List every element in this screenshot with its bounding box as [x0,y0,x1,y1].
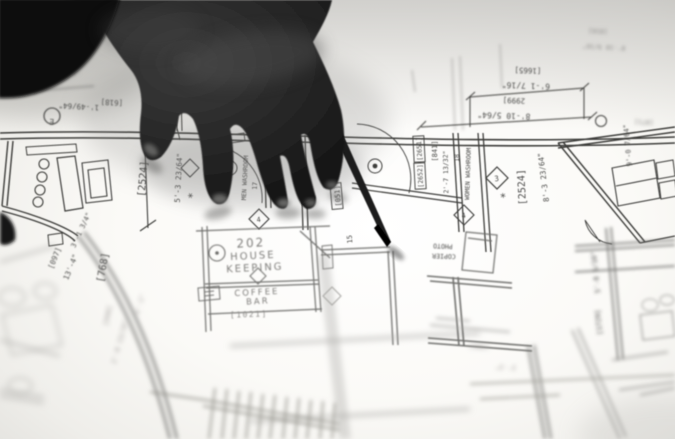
dim-33: 3'-3" [495,362,516,371]
room-202-number: 202 [236,235,266,250]
tag-841: [841] [431,140,439,161]
dim-2713: 2'-7 13/32" [442,150,451,193]
photo-hand-over-blueprint: [816] 8'-10 61/64" -1' 49/64" [512] [816… [0,0,675,439]
coffee-bar-line2: BAR [246,296,270,307]
target-dot-right [373,164,378,169]
tag-1021: [1021] [230,309,268,319]
dim-1665-len: 6'-1 7/16" [502,80,550,91]
wrist-highlight [100,8,200,52]
tag-2652-text: [2652] [416,164,425,188]
dim-816-tr-tag: [816] [588,26,608,35]
num-15: 15 [346,235,355,244]
dim-2999-tag: 2999] [502,96,525,106]
dim-2524-right: [2524] [516,169,529,206]
copier-label1: PHOTO [433,242,453,251]
tag-986: [986] [468,341,489,350]
dim-1665-tag: [1665] [514,66,541,76]
circle-e-letter: E [49,117,54,126]
door-pivot-dot [215,251,219,255]
dim-2999-len: 8'-10 5/64" [477,110,530,121]
copier-label2: COPIER [432,252,456,261]
pinky-tip-light [326,181,338,189]
middle-tip-light [277,199,291,208]
dim-871-tag: [871] [634,117,654,126]
index-tip-light [212,194,228,204]
tag-2651-text: [2651] [415,137,424,161]
ring-tip-light [305,199,317,207]
